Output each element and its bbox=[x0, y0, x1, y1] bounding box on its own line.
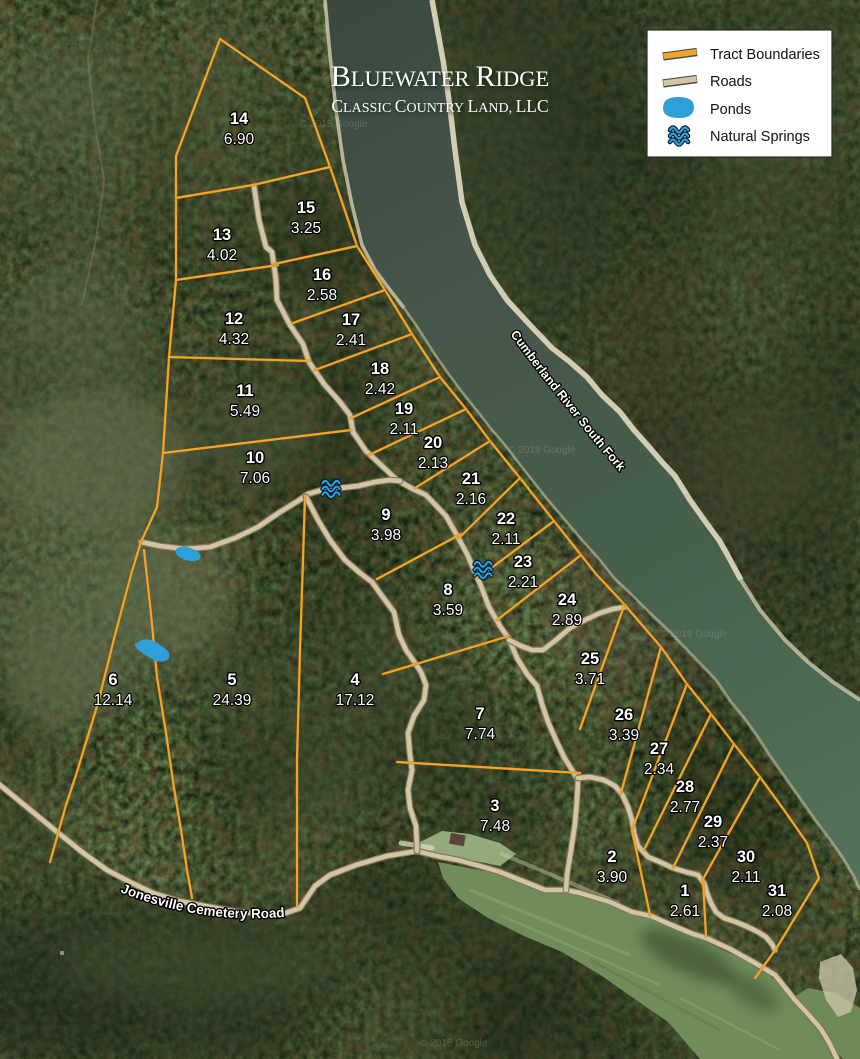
svg-text:19: 19 bbox=[395, 400, 413, 418]
svg-text:26: 26 bbox=[615, 706, 633, 724]
svg-text:2.11: 2.11 bbox=[389, 421, 418, 438]
svg-text:2.16: 2.16 bbox=[456, 491, 486, 508]
svg-text:7.74: 7.74 bbox=[465, 726, 496, 743]
svg-text:13: 13 bbox=[213, 226, 231, 244]
svg-text:14: 14 bbox=[230, 110, 249, 128]
svg-text:28: 28 bbox=[676, 778, 694, 796]
svg-text:17: 17 bbox=[342, 311, 360, 329]
svg-text:6.90: 6.90 bbox=[224, 131, 255, 148]
svg-text:18: 18 bbox=[371, 360, 389, 378]
svg-text:20: 20 bbox=[424, 434, 442, 452]
svg-text:31: 31 bbox=[768, 882, 786, 900]
svg-text:3.98: 3.98 bbox=[371, 527, 401, 544]
svg-text:10: 10 bbox=[246, 449, 264, 467]
svg-text:16: 16 bbox=[313, 266, 331, 284]
svg-text:7.48: 7.48 bbox=[480, 818, 510, 835]
svg-text:23: 23 bbox=[514, 553, 532, 571]
svg-text:2.11: 2.11 bbox=[731, 869, 760, 886]
svg-text:30: 30 bbox=[737, 848, 755, 866]
svg-text:© 2018 Google: © 2018 Google bbox=[420, 1038, 488, 1049]
svg-text:6: 6 bbox=[108, 671, 117, 689]
svg-text:4.32: 4.32 bbox=[219, 331, 249, 348]
svg-text:Roads: Roads bbox=[710, 74, 752, 90]
svg-text:12: 12 bbox=[225, 310, 243, 328]
svg-text:9: 9 bbox=[381, 506, 390, 524]
svg-text:2.34: 2.34 bbox=[644, 761, 675, 778]
svg-text:2.61: 2.61 bbox=[670, 903, 700, 920]
svg-text:© 2019 Google: © 2019 Google bbox=[660, 629, 728, 640]
svg-text:2.08: 2.08 bbox=[762, 903, 792, 920]
svg-text:5: 5 bbox=[227, 671, 236, 689]
svg-text:21: 21 bbox=[462, 470, 480, 488]
svg-text:22: 22 bbox=[497, 510, 515, 528]
svg-text:2.77: 2.77 bbox=[670, 799, 700, 816]
svg-text:12.14: 12.14 bbox=[94, 692, 133, 709]
svg-text:8: 8 bbox=[443, 581, 452, 599]
svg-text:2.11: 2.11 bbox=[491, 531, 520, 548]
svg-text:4: 4 bbox=[350, 671, 360, 689]
svg-text:2: 2 bbox=[607, 848, 616, 866]
svg-text:3.25: 3.25 bbox=[291, 220, 321, 237]
svg-text:11: 11 bbox=[236, 382, 253, 400]
svg-text:Ponds: Ponds bbox=[710, 102, 751, 118]
svg-text:Natural Springs: Natural Springs bbox=[710, 129, 810, 145]
svg-text:27: 27 bbox=[650, 740, 668, 758]
svg-text:5.49: 5.49 bbox=[230, 403, 260, 420]
svg-text:2.89: 2.89 bbox=[552, 612, 582, 629]
svg-text:© 2018 Google: © 2018 Google bbox=[508, 445, 576, 456]
svg-text:2.58: 2.58 bbox=[307, 287, 337, 304]
svg-text:2.21: 2.21 bbox=[508, 574, 538, 591]
svg-text:2.13: 2.13 bbox=[418, 455, 448, 472]
svg-text:15: 15 bbox=[297, 199, 315, 217]
svg-text:17.12: 17.12 bbox=[336, 692, 375, 709]
svg-text:3: 3 bbox=[490, 797, 499, 815]
svg-text:2.42: 2.42 bbox=[365, 381, 395, 398]
svg-text:25: 25 bbox=[581, 650, 599, 668]
svg-text:24.39: 24.39 bbox=[213, 692, 252, 709]
svg-text:3.90: 3.90 bbox=[597, 869, 628, 886]
svg-text:© 2018 Google: © 2018 Google bbox=[300, 119, 368, 130]
svg-text:1: 1 bbox=[680, 882, 689, 900]
svg-text:3.59: 3.59 bbox=[433, 602, 463, 619]
svg-text:2.37: 2.37 bbox=[698, 834, 728, 851]
svg-text:29: 29 bbox=[704, 813, 722, 831]
svg-text:7.06: 7.06 bbox=[240, 470, 270, 487]
svg-text:3.39: 3.39 bbox=[609, 727, 639, 744]
svg-text:Tract Boundaries: Tract Boundaries bbox=[710, 47, 820, 63]
svg-text:4.02: 4.02 bbox=[207, 247, 237, 264]
svg-text:24: 24 bbox=[558, 591, 577, 609]
svg-text:3.71: 3.71 bbox=[575, 671, 605, 688]
svg-text:7: 7 bbox=[475, 705, 484, 723]
svg-text:2.41: 2.41 bbox=[336, 332, 366, 349]
